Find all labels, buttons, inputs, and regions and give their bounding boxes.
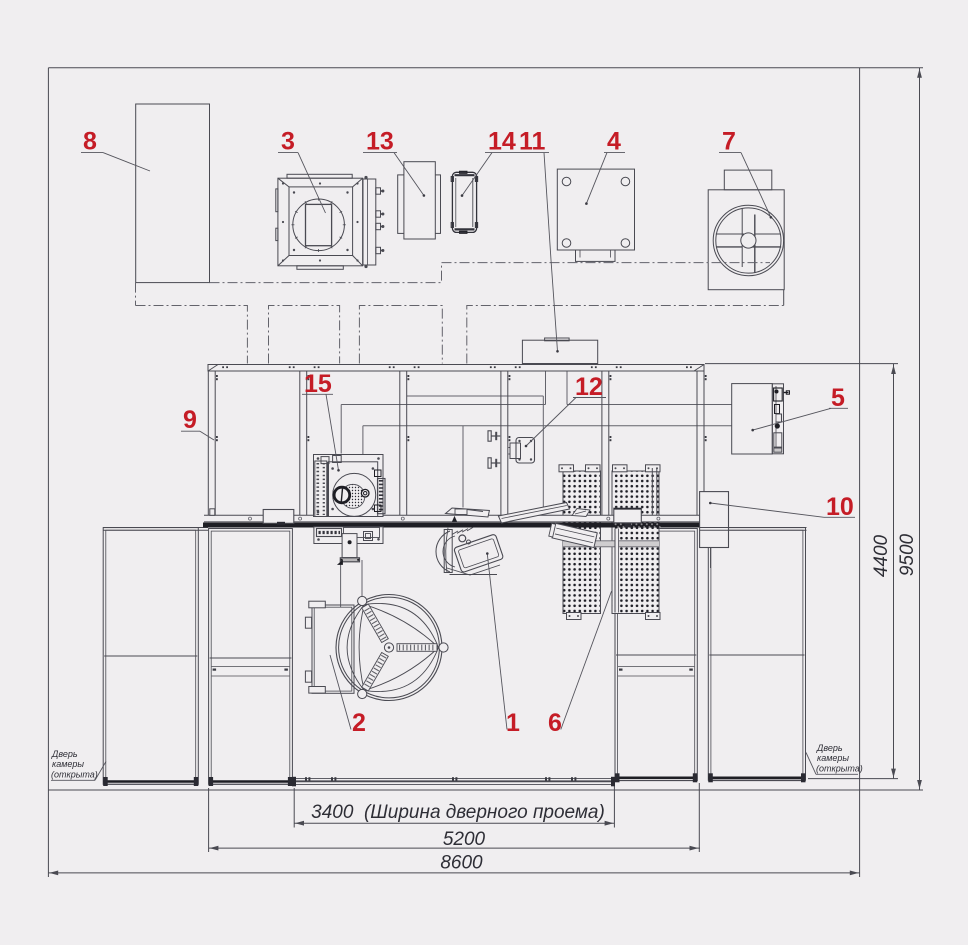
svg-text:8: 8 bbox=[83, 128, 97, 156]
svg-text:9500: 9500 bbox=[897, 533, 918, 576]
svg-text:7: 7 bbox=[722, 128, 736, 156]
svg-text:камеры: камеры bbox=[52, 759, 84, 769]
svg-text:2: 2 bbox=[352, 709, 366, 737]
svg-text:11: 11 bbox=[519, 128, 546, 156]
svg-text:Дверь: Дверь bbox=[816, 743, 843, 753]
svg-text:9: 9 bbox=[183, 406, 197, 434]
svg-text:5: 5 bbox=[831, 384, 845, 412]
svg-text:10: 10 bbox=[826, 493, 854, 521]
svg-text:14: 14 bbox=[488, 128, 516, 156]
svg-text:8600: 8600 bbox=[440, 853, 483, 874]
svg-text:камеры: камеры bbox=[817, 753, 849, 763]
svg-text:6: 6 bbox=[548, 709, 562, 737]
svg-text:13: 13 bbox=[366, 128, 394, 156]
svg-text:4400: 4400 bbox=[871, 534, 892, 577]
svg-text:(открыта): (открыта) bbox=[51, 770, 98, 780]
svg-text:(открыта): (открыта) bbox=[816, 764, 863, 774]
svg-text:1: 1 bbox=[506, 709, 520, 737]
svg-text:3400 (Ширина дверного проема): 3400 (Ширина дверного проема) bbox=[311, 802, 605, 823]
svg-text:12: 12 bbox=[575, 373, 603, 401]
svg-text:5200: 5200 bbox=[443, 829, 486, 850]
svg-text:4: 4 bbox=[607, 128, 621, 156]
svg-text:15: 15 bbox=[304, 370, 332, 398]
svg-text:3: 3 bbox=[281, 128, 295, 156]
svg-text:Дверь: Дверь bbox=[51, 749, 78, 759]
